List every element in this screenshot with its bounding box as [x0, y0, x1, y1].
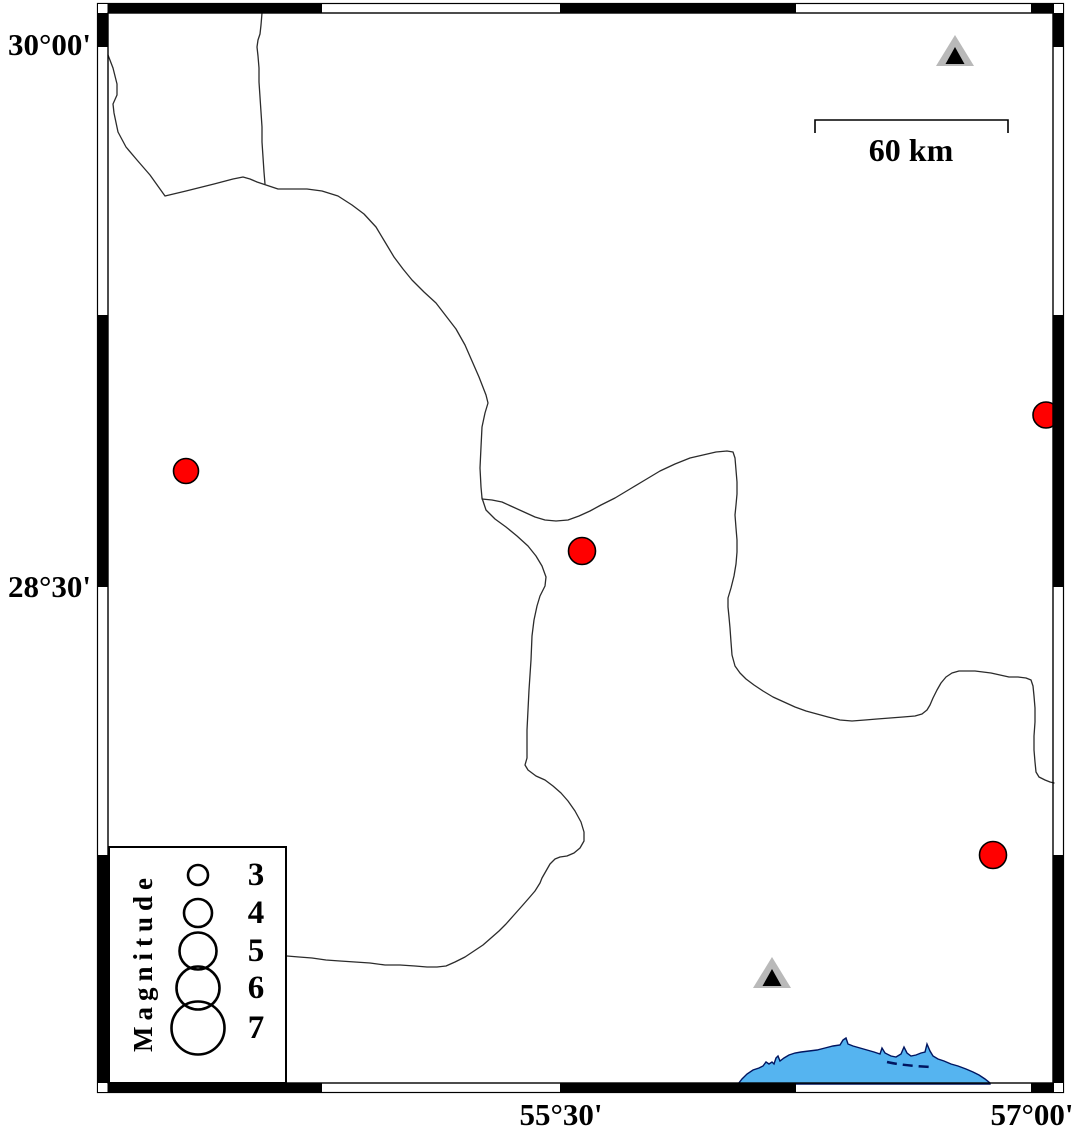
lon-label-55-30: 55°30' [461, 1096, 661, 1131]
boundary-line-northwest [108, 55, 488, 498]
map-canvas [0, 0, 1074, 1131]
seismicity-map: 30°00' 28°30' 55°30' 57°00' 60 km Magnit… [0, 0, 1074, 1131]
epicenter-dot [569, 538, 596, 565]
lat-label-30-00: 30°00' [0, 26, 91, 64]
epicenter-dot [174, 459, 199, 484]
legend-magnitude-7: 7 [226, 1009, 286, 1047]
epicenter-dot [980, 842, 1007, 869]
scale-bar-label: 60 km [811, 132, 1011, 168]
station-triangles [753, 35, 974, 988]
lon-label-57-00: 57°00' [932, 1096, 1074, 1131]
boundary-line-top [257, 13, 265, 184]
legend-magnitude-3: 3 [226, 856, 286, 894]
boundary-line-east [482, 451, 1054, 783]
legend-magnitude-4: 4 [226, 894, 286, 932]
epicenter-dots [174, 402, 1060, 869]
legend-title: Magnitude [128, 852, 158, 1072]
water-body [738, 1038, 990, 1084]
lat-label-28-30: 28°30' [0, 568, 91, 606]
legend-magnitude-6: 6 [226, 969, 286, 1007]
legend-magnitude-5: 5 [226, 932, 286, 970]
boundary-line-south [287, 498, 584, 967]
